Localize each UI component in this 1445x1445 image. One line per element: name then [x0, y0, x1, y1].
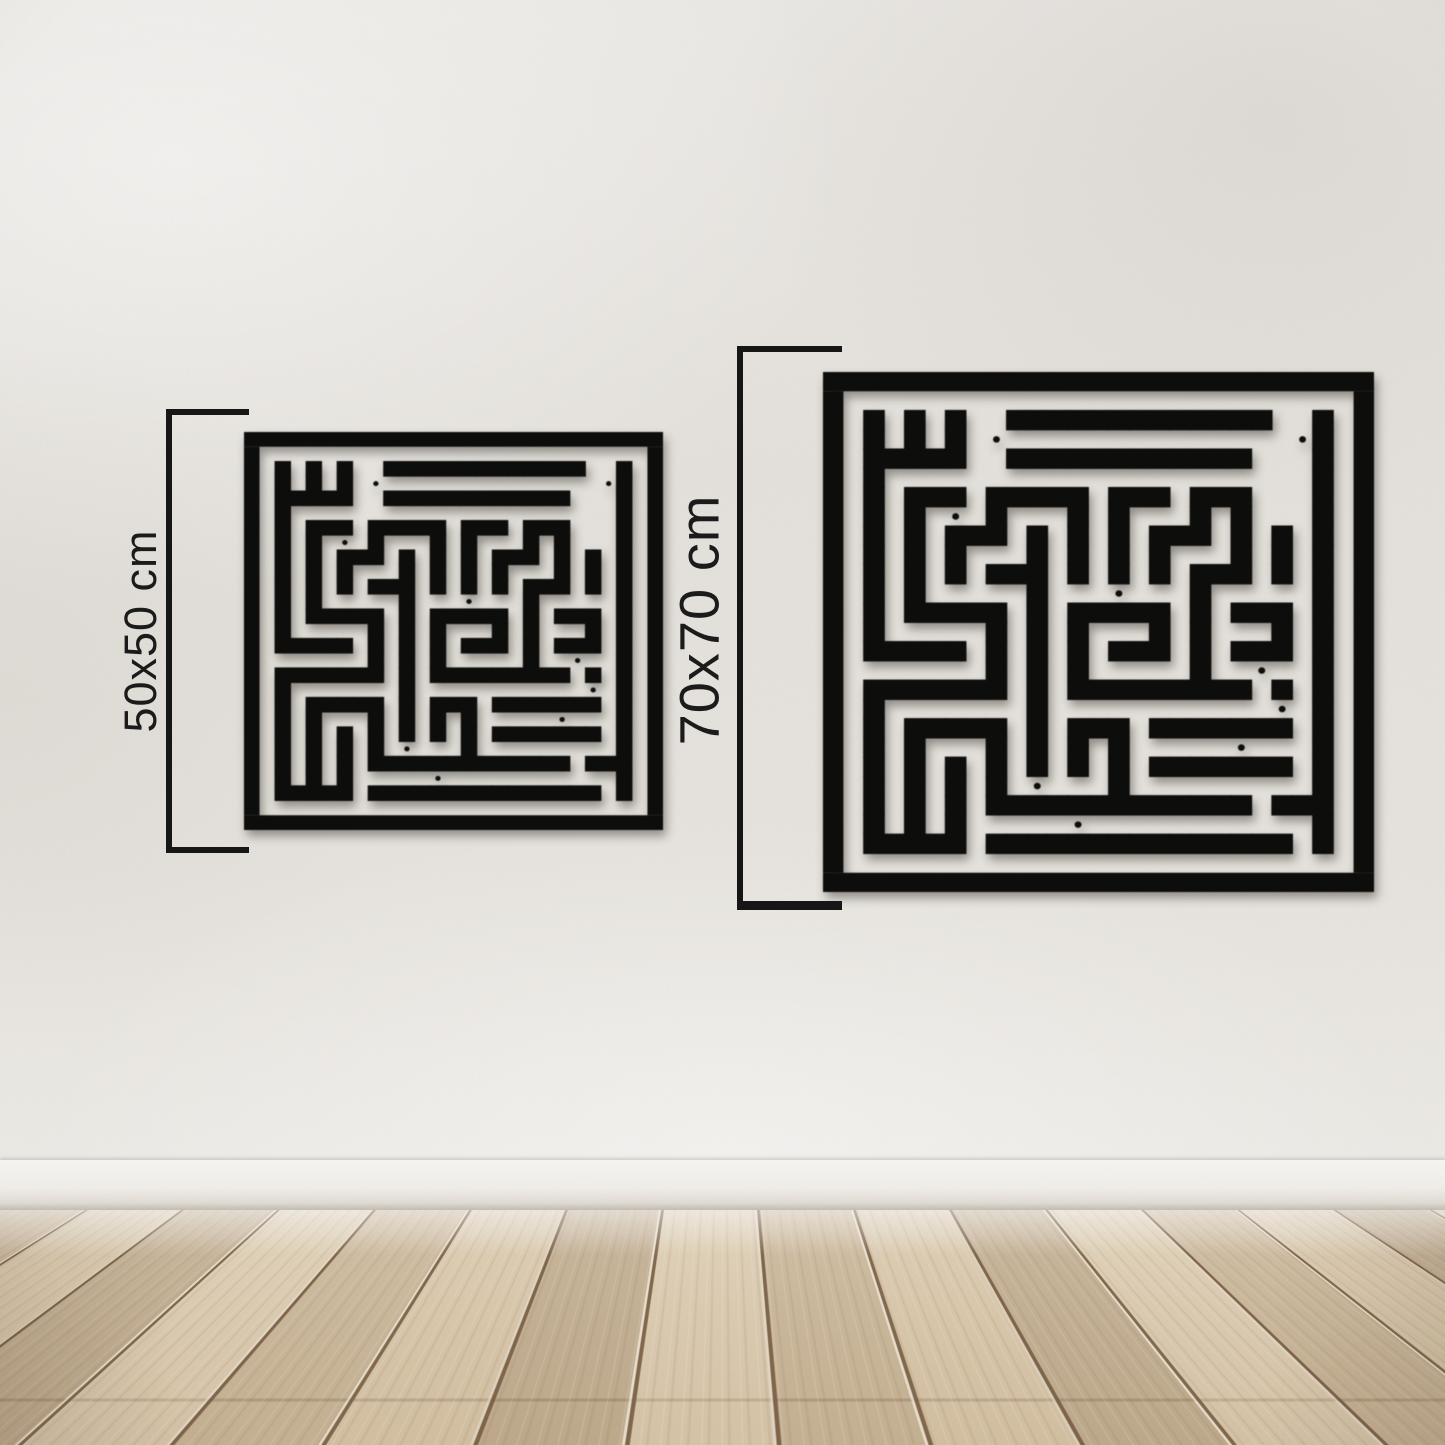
size-label-left: 50x50 cm: [115, 529, 167, 732]
artwork-panel-70x70: [823, 372, 1374, 892]
size-bracket-right: [737, 346, 842, 910]
kufic-calligraphy-pattern-right: [823, 372, 1374, 892]
artwork-panel-50x50: [244, 432, 663, 830]
size-label-right: 70x70 cm: [667, 495, 732, 746]
floor-light-haze: [0, 1210, 1445, 1445]
room-scene: 50x50 cm 70x70 cm: [0, 0, 1445, 1445]
kufic-calligraphy-pattern-left: [244, 432, 663, 830]
baseboard: [0, 1160, 1445, 1210]
size-bracket-left: [166, 409, 249, 853]
bracket-tick-bottom: [172, 847, 249, 853]
bracket-tick-bottom: [743, 901, 842, 910]
bracket-tick-top: [743, 346, 842, 352]
bracket-tick-top: [172, 409, 249, 415]
floor: [0, 1210, 1445, 1445]
